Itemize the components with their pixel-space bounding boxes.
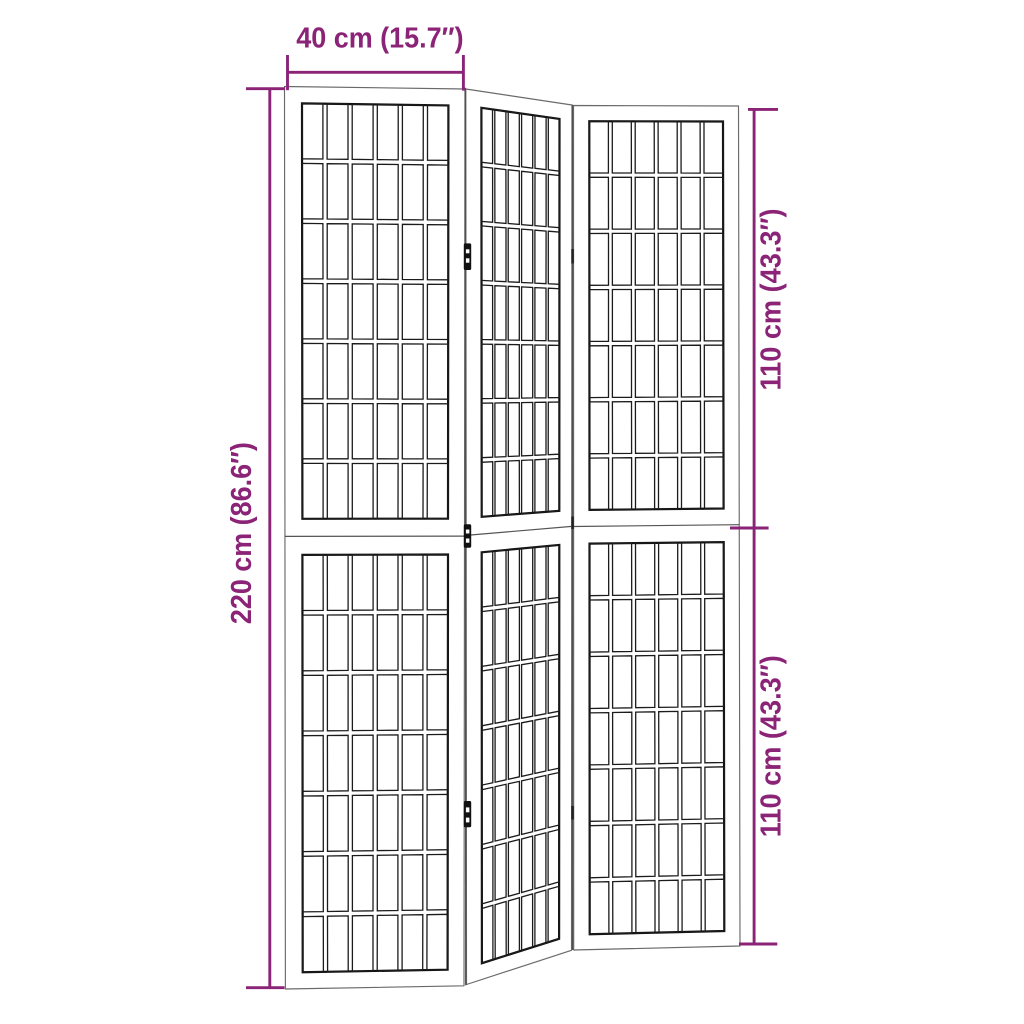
svg-text:110 cm (43.3″): 110 cm (43.3″): [755, 655, 787, 837]
svg-text:110 cm (43.3″): 110 cm (43.3″): [755, 209, 787, 391]
svg-text:220 cm (86.6″): 220 cm (86.6″): [226, 442, 258, 624]
svg-text:40 cm (15.7″): 40 cm (15.7″): [296, 23, 463, 55]
